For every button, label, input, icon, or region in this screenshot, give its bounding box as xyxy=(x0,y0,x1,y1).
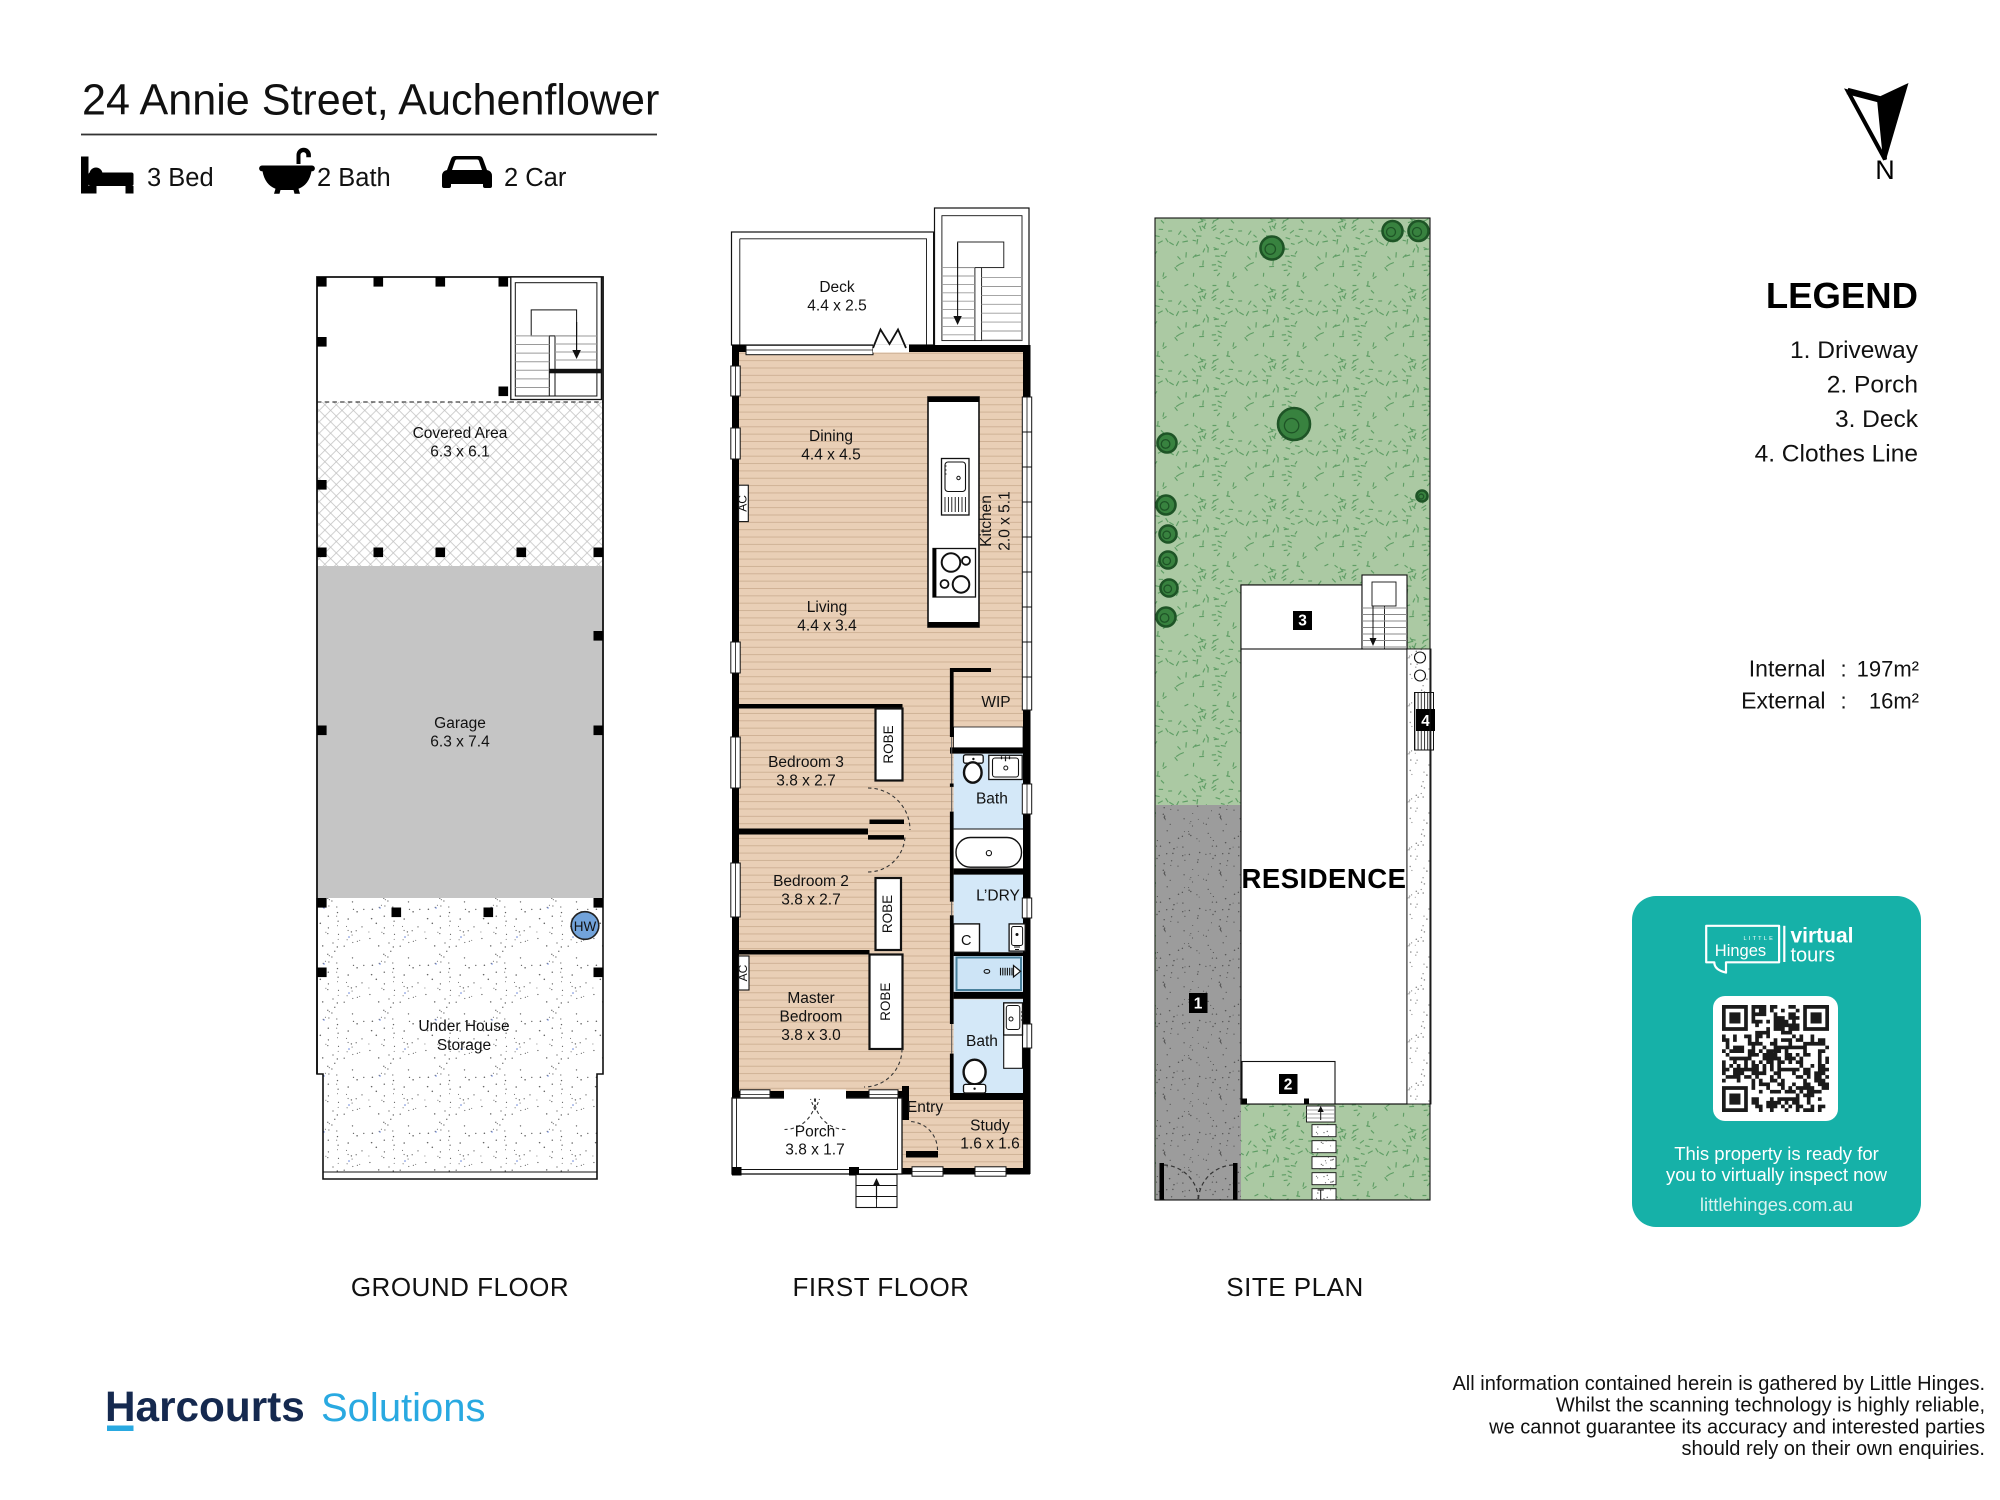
svg-text:Garage: Garage xyxy=(434,715,486,732)
svg-text:1: 1 xyxy=(1194,996,1203,1013)
svg-text:Kitchen: Kitchen xyxy=(978,495,995,547)
svg-text:WIP: WIP xyxy=(981,694,1010,711)
svg-text:LEGEND: LEGEND xyxy=(1766,275,1918,316)
svg-text:Bedroom 3: Bedroom 3 xyxy=(768,754,844,771)
svg-text:LITTLE: LITTLE xyxy=(1744,936,1776,942)
svg-text:Bath: Bath xyxy=(966,1033,998,1050)
svg-text:4.4 x 2.5: 4.4 x 2.5 xyxy=(807,298,866,315)
svg-text:littlehinges.com.au: littlehinges.com.au xyxy=(1700,1194,1853,1215)
svg-text:3.8 x 1.7: 3.8 x 1.7 xyxy=(785,1142,844,1159)
svg-text:4. Clothes Line: 4. Clothes Line xyxy=(1755,441,1918,468)
svg-text:ROBE: ROBE xyxy=(881,725,896,763)
svg-text:we cannot guarantee its accura: we cannot guarantee its accuracy and int… xyxy=(1488,1416,1985,1438)
svg-text:3 Bed: 3 Bed xyxy=(147,164,214,192)
svg-text:ROBE: ROBE xyxy=(880,895,895,933)
svg-text:C: C xyxy=(961,933,971,949)
svg-text:Covered Area: Covered Area xyxy=(413,425,508,442)
svg-text:AC: AC xyxy=(736,495,750,512)
svg-text:4.4 x 4.5: 4.4 x 4.5 xyxy=(801,447,860,464)
svg-text:Hinges: Hinges xyxy=(1715,942,1766,960)
svg-text:Dining: Dining xyxy=(809,428,853,445)
svg-text:197m²: 197m² xyxy=(1857,657,1919,682)
svg-text:L’DRY: L’DRY xyxy=(976,888,1020,905)
svg-text:Study: Study xyxy=(970,1118,1010,1135)
svg-text:GROUND FLOOR: GROUND FLOOR xyxy=(351,1272,569,1302)
svg-text:4.4 x 3.4: 4.4 x 3.4 xyxy=(797,618,857,635)
svg-text:Bedroom 2: Bedroom 2 xyxy=(773,873,849,890)
svg-text:Storage: Storage xyxy=(437,1037,491,1054)
svg-text:1. Driveway: 1. Driveway xyxy=(1790,337,1919,364)
svg-text:3. Deck: 3. Deck xyxy=(1835,406,1919,433)
svg-text:Internal: Internal xyxy=(1749,656,1826,682)
svg-text:4: 4 xyxy=(1421,713,1430,730)
svg-text:3.8 x 2.7: 3.8 x 2.7 xyxy=(781,892,840,909)
svg-text:RESIDENCE: RESIDENCE xyxy=(1242,863,1407,894)
svg-text::: : xyxy=(1840,689,1846,714)
svg-text:All information contained here: All information contained herein is gath… xyxy=(1452,1373,1985,1395)
svg-text:HW: HW xyxy=(574,919,597,934)
svg-text:3.8 x 2.7: 3.8 x 2.7 xyxy=(776,773,835,790)
svg-text:3.8 x 3.0: 3.8 x 3.0 xyxy=(781,1027,841,1044)
svg-text:16m²: 16m² xyxy=(1869,689,1919,714)
svg-text:Living: Living xyxy=(807,599,848,616)
svg-text:Entry: Entry xyxy=(907,1099,943,1116)
svg-text:2: 2 xyxy=(1284,1077,1293,1094)
svg-text:Porch: Porch xyxy=(795,1124,836,1141)
svg-text:AC: AC xyxy=(736,964,750,981)
svg-text:2. Porch: 2. Porch xyxy=(1827,372,1918,399)
svg-text:Deck: Deck xyxy=(819,279,855,296)
svg-text:SITE PLAN: SITE PLAN xyxy=(1226,1272,1363,1302)
svg-text:Solutions: Solutions xyxy=(321,1386,486,1430)
svg-text:FIRST FLOOR: FIRST FLOOR xyxy=(793,1272,970,1302)
svg-text:tours: tours xyxy=(1791,945,1835,967)
svg-text:N: N xyxy=(1875,155,1895,185)
svg-text:External: External xyxy=(1741,688,1825,714)
svg-text::: : xyxy=(1840,657,1846,682)
svg-text:3: 3 xyxy=(1298,613,1307,630)
svg-text:Bath: Bath xyxy=(976,791,1008,808)
svg-text:2.0 x 5.1: 2.0 x 5.1 xyxy=(997,491,1014,550)
svg-text:you to virtually inspect now: you to virtually inspect now xyxy=(1666,1164,1888,1185)
svg-text:ROBE: ROBE xyxy=(878,983,893,1021)
svg-text:Harcourts: Harcourts xyxy=(105,1383,305,1430)
svg-text:6.3 x 7.4: 6.3 x 7.4 xyxy=(430,734,490,751)
svg-text:2 Bath: 2 Bath xyxy=(317,164,391,192)
svg-text:This property is ready for: This property is ready for xyxy=(1674,1143,1879,1164)
svg-text:2 Car: 2 Car xyxy=(504,164,567,192)
svg-text:6.3 x 6.1: 6.3 x 6.1 xyxy=(430,444,489,461)
svg-text:24 Annie Street, Auchenflower: 24 Annie Street, Auchenflower xyxy=(82,77,659,125)
svg-text:1.6 x 1.6: 1.6 x 1.6 xyxy=(960,1136,1019,1153)
svg-text:Bedroom: Bedroom xyxy=(780,1009,843,1026)
svg-text:should rely on their own enqui: should rely on their own enquiries. xyxy=(1681,1438,1985,1460)
svg-text:Master: Master xyxy=(787,990,834,1007)
svg-text:Under House: Under House xyxy=(418,1018,509,1035)
svg-text:Whilst the scanning technology: Whilst the scanning technology is highly… xyxy=(1556,1395,1985,1417)
